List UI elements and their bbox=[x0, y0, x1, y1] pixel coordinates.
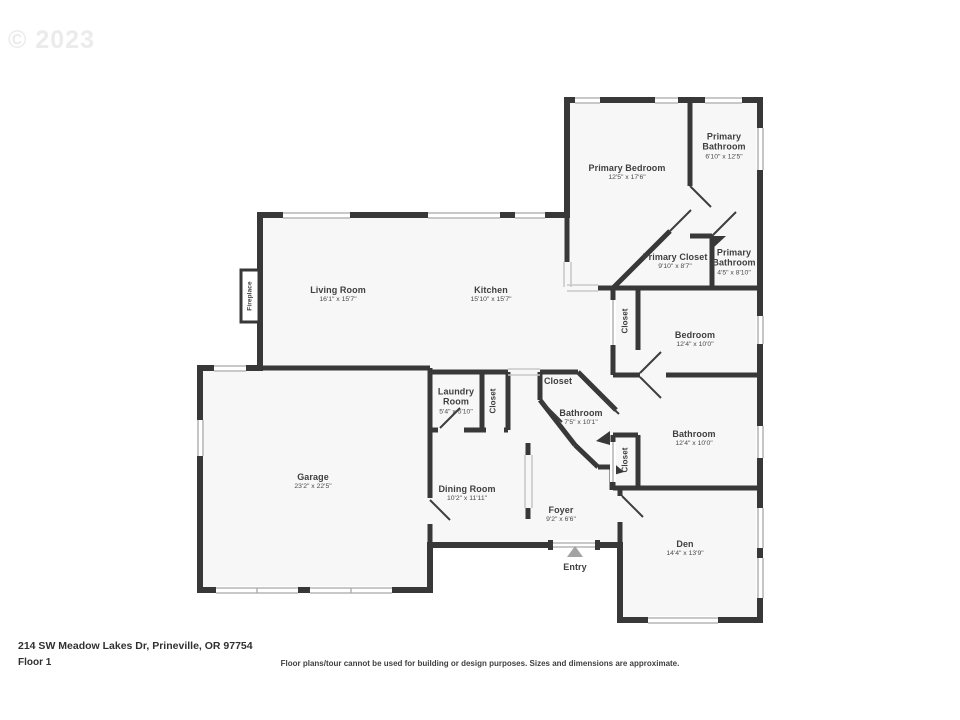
room-name: Closet bbox=[544, 376, 572, 386]
room-dims: 9'2" x 6'6" bbox=[546, 516, 576, 523]
room-dims: 4'5" x 8'10" bbox=[706, 269, 762, 276]
property-address: 214 SW Meadow Lakes Dr, Prineville, OR 9… bbox=[18, 640, 253, 652]
room-name: Foyer bbox=[546, 505, 576, 515]
floor-plan-svg bbox=[0, 0, 960, 720]
room-label-bedroom: Bedroom 12'4" x 10'0" bbox=[675, 330, 715, 348]
room-name: Den bbox=[666, 539, 703, 549]
room-label-closet-laundry: Closet bbox=[488, 388, 497, 413]
room-dims: 23'2" x 22'5" bbox=[294, 483, 331, 490]
room-dims: 12'4" x 10'0" bbox=[672, 440, 715, 447]
room-dims: 12'4" x 10'0" bbox=[675, 341, 715, 348]
room-dims: 5'4" x 5'10" bbox=[430, 408, 482, 415]
room-name: Primary Bedroom bbox=[588, 163, 665, 173]
room-label-foyer: Foyer 9'2" x 6'6" bbox=[546, 505, 576, 523]
room-label-closet-hall-upper: Closet bbox=[620, 308, 629, 333]
room-label-garage: Garage 23'2" x 22'5" bbox=[294, 472, 331, 490]
room-label-entry: Entry bbox=[563, 562, 587, 572]
room-label-kitchen: Kitchen 15'10" x 15'7" bbox=[470, 285, 511, 303]
room-name: Bathroom bbox=[672, 429, 715, 439]
room-name: Kitchen bbox=[470, 285, 511, 295]
floor-plan-page: © 2023 bbox=[0, 0, 960, 720]
room-label-primary-bathroom-upper: Primary Bathroom 6'10" x 12'5" bbox=[693, 132, 755, 161]
room-label-primary-bathroom-lower: Primary Bathroom 4'5" x 8'10" bbox=[706, 248, 762, 277]
room-name: Living Room bbox=[310, 285, 366, 295]
room-dims: 7'5" x 10'1" bbox=[559, 419, 602, 426]
room-name: Garage bbox=[294, 472, 331, 482]
room-name: Primary Bathroom bbox=[706, 248, 762, 269]
room-label-fireplace: Fireplace bbox=[246, 281, 253, 310]
room-dims: 9'10" x 8'7" bbox=[643, 263, 708, 270]
room-name: Laundry Room bbox=[430, 387, 482, 408]
room-dims: 10'2" x 11'11" bbox=[438, 495, 495, 502]
room-label-primary-closet: Primary Closet 9'10" x 8'7" bbox=[643, 252, 708, 270]
room-name: Closet bbox=[620, 308, 629, 333]
room-name: Fireplace bbox=[246, 281, 253, 310]
room-label-bathroom-hall: Bathroom 7'5" x 10'1" bbox=[559, 408, 602, 426]
room-name: Primary Closet bbox=[643, 252, 708, 262]
room-label-primary-bedroom: Primary Bedroom 12'5" x 17'6" bbox=[588, 163, 665, 181]
room-name: Primary Bathroom bbox=[693, 132, 755, 153]
room-label-dining-room: Dining Room 10'2" x 11'11" bbox=[438, 484, 495, 502]
room-name: Dining Room bbox=[438, 484, 495, 494]
room-label-laundry-room: Laundry Room 5'4" x 5'10" bbox=[430, 387, 482, 416]
room-name: Closet bbox=[620, 447, 629, 472]
room-name: Entry bbox=[563, 562, 587, 572]
room-label-bathroom-main: Bathroom 12'4" x 10'0" bbox=[672, 429, 715, 447]
room-label-closet-bath: Closet bbox=[620, 447, 629, 472]
disclaimer-text: Floor plans/tour cannot be used for buil… bbox=[0, 659, 960, 668]
room-label-closet-hall-small: Closet bbox=[544, 376, 572, 386]
room-name: Closet bbox=[488, 388, 497, 413]
room-name: Bathroom bbox=[559, 408, 602, 418]
room-name: Bedroom bbox=[675, 330, 715, 340]
room-label-living-room: Living Room 16'1" x 15'7" bbox=[310, 285, 366, 303]
room-label-den: Den 14'4" x 13'9" bbox=[666, 539, 703, 557]
room-dims: 15'10" x 15'7" bbox=[470, 296, 511, 303]
room-dims: 12'5" x 17'6" bbox=[588, 174, 665, 181]
room-dims: 16'1" x 15'7" bbox=[310, 296, 366, 303]
room-dims: 6'10" x 12'5" bbox=[693, 153, 755, 160]
room-dims: 14'4" x 13'9" bbox=[666, 550, 703, 557]
